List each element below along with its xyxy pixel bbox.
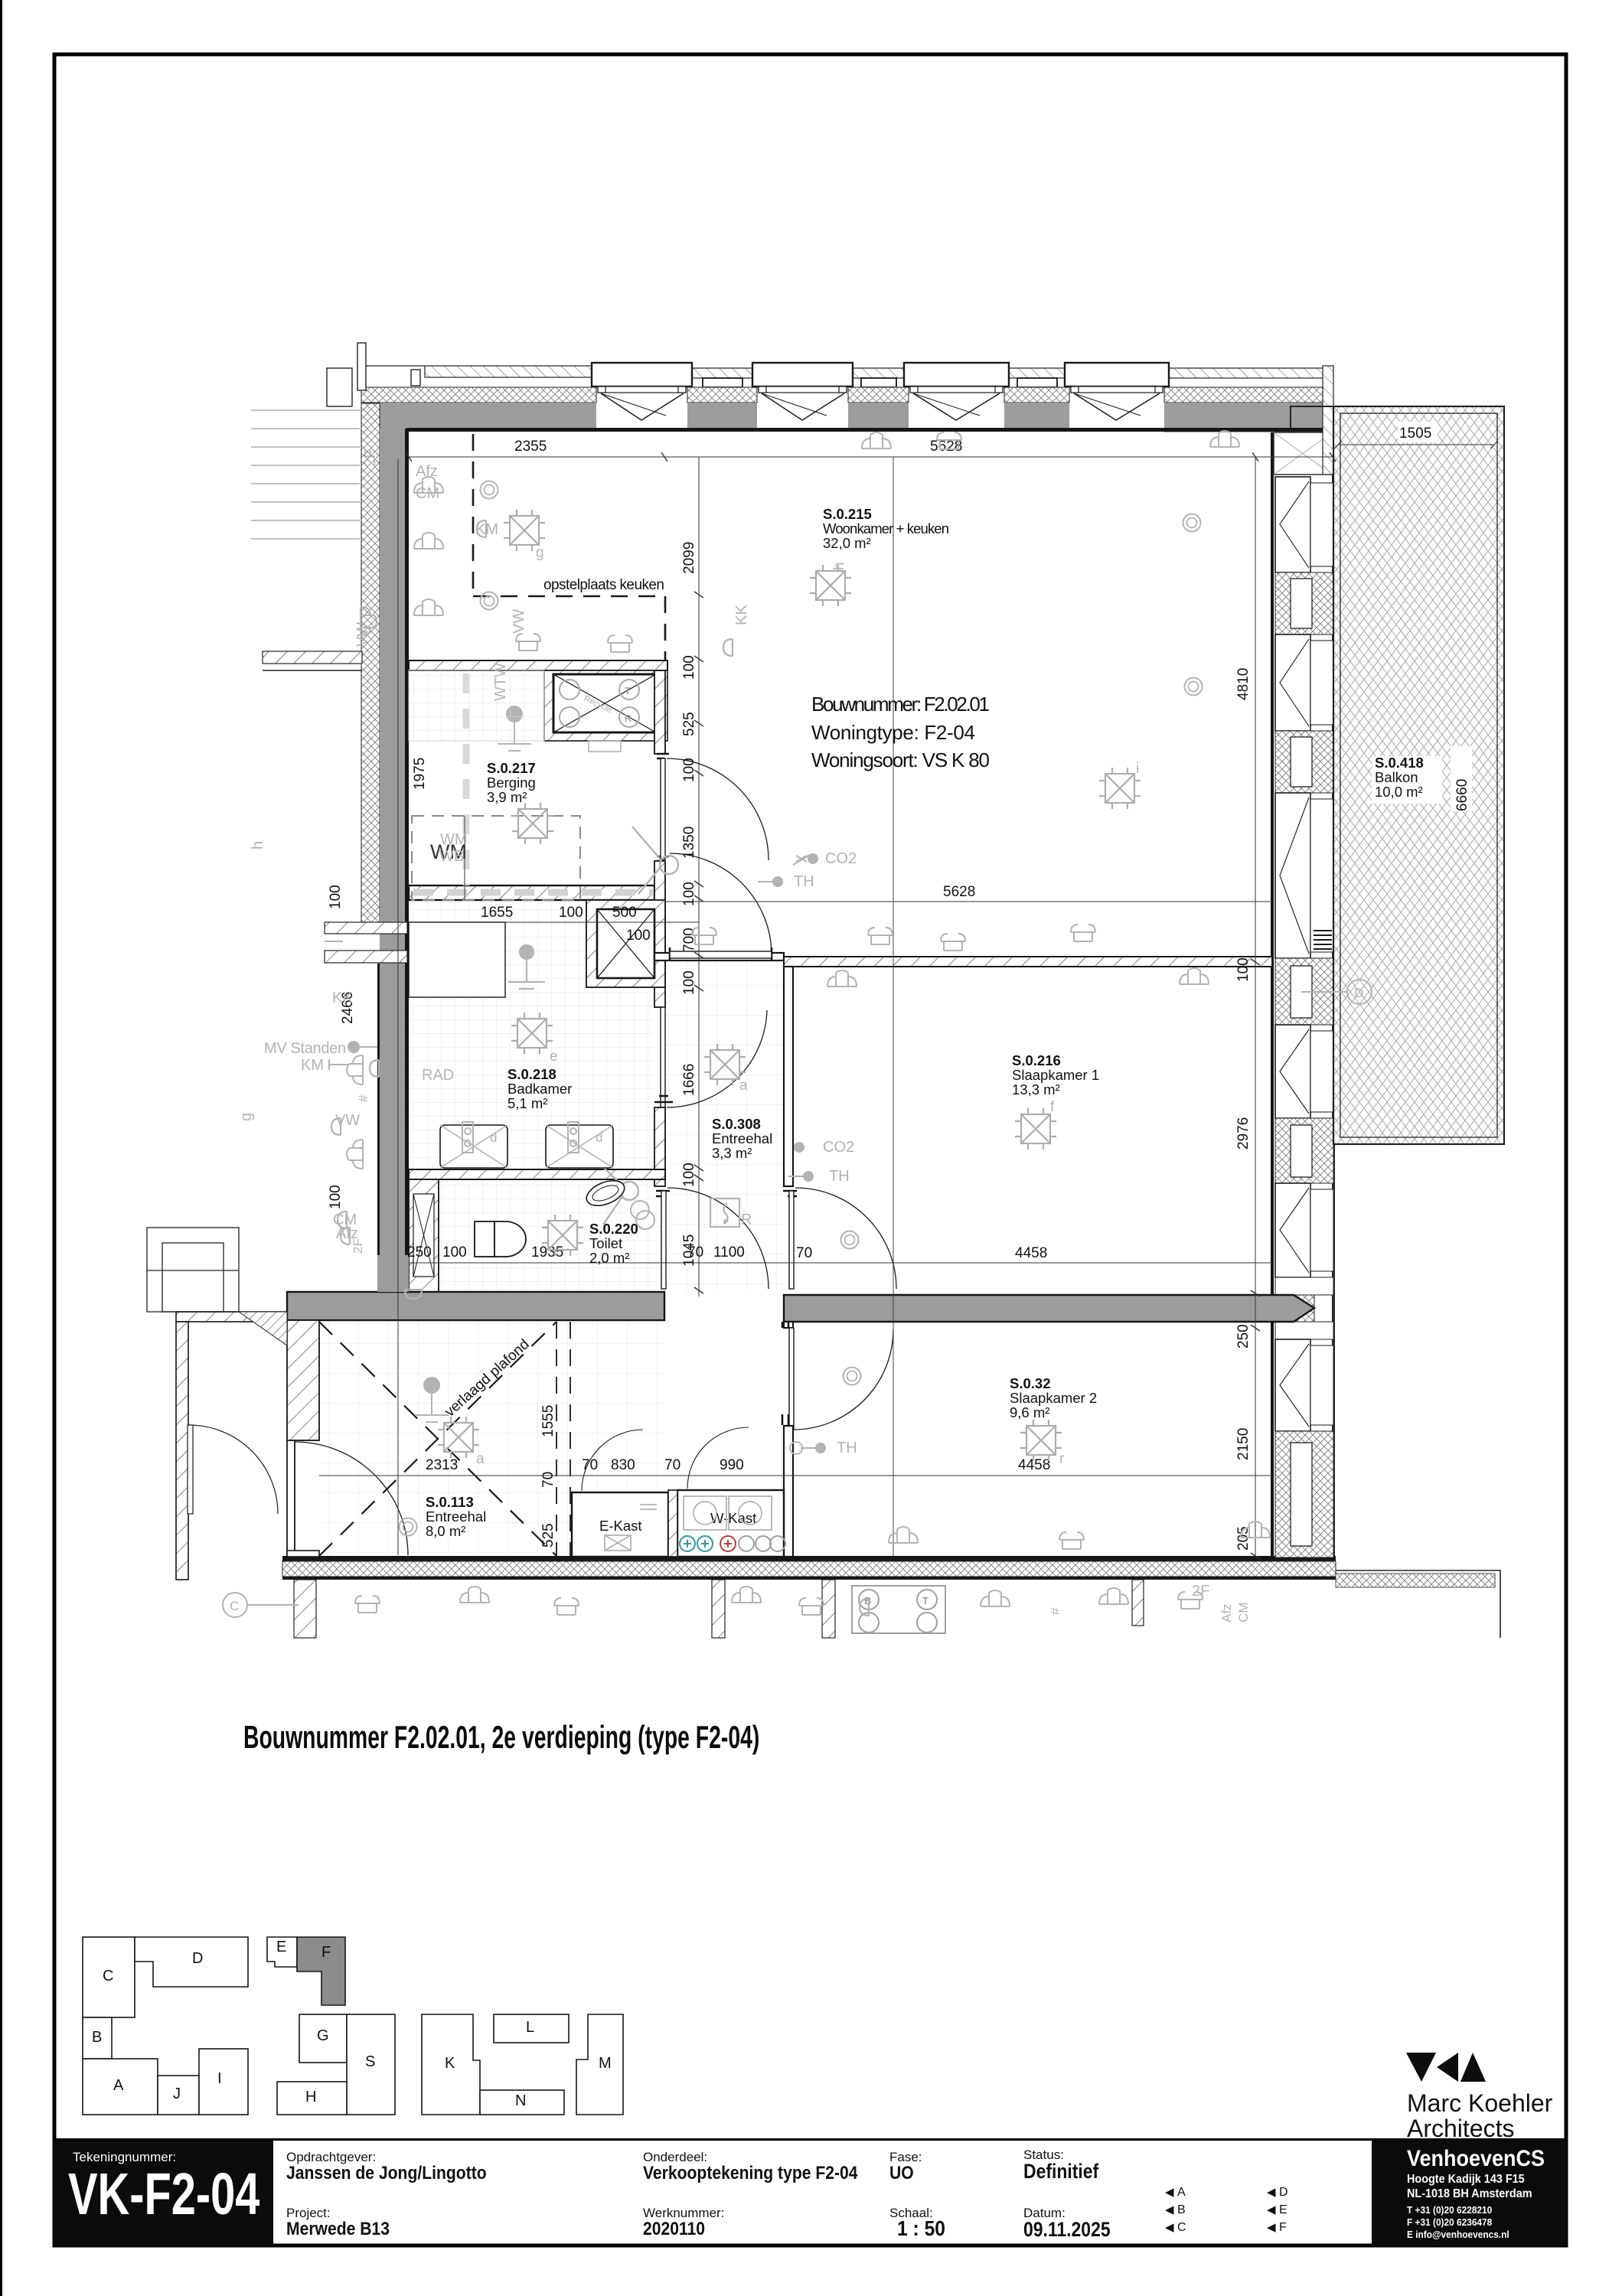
svg-text:100: 100	[681, 758, 697, 782]
svg-text:S.0.215: S.0.215	[823, 506, 872, 522]
svg-text:CO2: CO2	[823, 1139, 854, 1156]
svg-text:Woningsoort: VS K 80: Woningsoort: VS K 80	[811, 748, 990, 771]
svg-text:S.0.220: S.0.220	[589, 1221, 638, 1237]
svg-text:J: J	[173, 2086, 181, 2102]
svg-text:VW: VW	[354, 622, 371, 647]
svg-text:2F: 2F	[1192, 1583, 1209, 1600]
svg-text:S.0.418: S.0.418	[1375, 755, 1424, 771]
svg-text:B: B	[92, 2029, 102, 2046]
svg-text:1350: 1350	[681, 827, 697, 859]
svg-text:WB: WB	[439, 848, 464, 865]
svg-text:E-Kast: E-Kast	[599, 1518, 642, 1534]
svg-text:D: D	[1354, 986, 1363, 1000]
svg-text:Balkon: Balkon	[1375, 769, 1418, 785]
svg-text:10,0 m²: 10,0 m²	[1375, 784, 1423, 800]
svg-text:70: 70	[687, 1244, 703, 1261]
svg-text:525: 525	[540, 1523, 556, 1548]
svg-text:1666: 1666	[681, 1064, 697, 1096]
svg-text:N: N	[515, 2092, 526, 2109]
svg-text:70: 70	[540, 1472, 556, 1488]
svg-text:32,0 m²: 32,0 m²	[823, 535, 871, 551]
svg-text:h: h	[250, 841, 266, 850]
svg-text:D: D	[192, 1950, 203, 1967]
svg-text:70: 70	[796, 1245, 812, 1261]
svg-text:500: 500	[612, 905, 637, 921]
svg-text:6660: 6660	[1454, 779, 1470, 811]
svg-text:70: 70	[582, 1457, 598, 1473]
svg-text:8,0 m²: 8,0 m²	[426, 1523, 465, 1539]
svg-text:MV Standen: MV Standen	[264, 1040, 346, 1057]
svg-text:2976: 2976	[1235, 1117, 1252, 1150]
svg-text:1100: 1100	[713, 1244, 745, 1261]
svg-text:Berging: Berging	[487, 775, 536, 791]
svg-text:Marc Koehler: Marc Koehler	[1407, 2089, 1553, 2117]
svg-text:e: e	[550, 1049, 558, 1065]
svg-text:h: h	[831, 562, 847, 570]
svg-text:Badkamer: Badkamer	[507, 1081, 572, 1097]
svg-text:R: R	[625, 713, 632, 724]
svg-text:M: M	[599, 2055, 612, 2072]
svg-text:g: g	[536, 545, 544, 561]
svg-text:S.0.216: S.0.216	[1012, 1052, 1061, 1068]
svg-text:E: E	[276, 1939, 286, 1955]
svg-text:R: R	[741, 1212, 752, 1228]
svg-text:S.0.113: S.0.113	[426, 1494, 474, 1510]
svg-text:Woningtype: F2-04: Woningtype: F2-04	[811, 721, 975, 744]
svg-text:4458: 4458	[1018, 1457, 1050, 1473]
svg-text:2099: 2099	[681, 542, 697, 574]
svg-text:T: T	[922, 1595, 928, 1606]
svg-text:5628: 5628	[943, 884, 975, 900]
svg-text:100: 100	[626, 928, 651, 944]
svg-text:I: I	[217, 2070, 222, 2087]
svg-text:830: 830	[611, 1457, 635, 1473]
svg-text:H: H	[305, 2089, 316, 2105]
svg-text:Woonkamer + keuken: Woonkamer + keuken	[823, 520, 949, 536]
svg-text:100: 100	[681, 655, 697, 680]
svg-text:VW: VW	[335, 1112, 360, 1129]
svg-text:a: a	[739, 1078, 748, 1094]
svg-text:RAD: RAD	[422, 1067, 454, 1084]
svg-text:S.0.32: S.0.32	[1010, 1375, 1051, 1391]
svg-text:100: 100	[681, 970, 697, 995]
svg-text:100: 100	[559, 905, 583, 921]
svg-text:100: 100	[328, 885, 344, 909]
svg-text:Entreehal: Entreehal	[426, 1508, 486, 1525]
svg-text:S.0.217: S.0.217	[487, 760, 536, 776]
svg-text:opstelplaats keuken: opstelplaats keuken	[543, 577, 664, 593]
svg-text:2F: 2F	[351, 1238, 365, 1254]
svg-text:Bouwnummer: F2.02.01: Bouwnummer: F2.02.01	[811, 693, 990, 716]
svg-text:T: T	[625, 685, 631, 696]
svg-text:100: 100	[328, 1185, 344, 1209]
svg-text:250: 250	[407, 1244, 432, 1261]
svg-text:5628: 5628	[930, 439, 962, 455]
svg-text:r: r	[1059, 1451, 1065, 1467]
svg-text:i: i	[1136, 761, 1139, 777]
svg-text:g: g	[238, 1113, 255, 1121]
svg-text:250: 250	[1235, 1324, 1252, 1349]
svg-text:Toilet: Toilet	[589, 1235, 622, 1251]
svg-text:100: 100	[1235, 957, 1252, 982]
svg-text:2355: 2355	[514, 439, 547, 455]
svg-text:#: #	[1048, 1607, 1062, 1615]
svg-text:KK: KK	[733, 605, 750, 625]
svg-text:a: a	[476, 1451, 485, 1467]
svg-text:4810: 4810	[1235, 668, 1252, 700]
svg-text:KM: KM	[301, 1057, 324, 1074]
svg-text:2,0 m²: 2,0 m²	[589, 1250, 629, 1266]
svg-text:Afz: Afz	[1219, 1603, 1234, 1623]
svg-text:9,6 m²: 9,6 m²	[1010, 1404, 1049, 1420]
svg-text:KM: KM	[475, 521, 498, 538]
svg-text:C: C	[103, 1968, 113, 1985]
svg-text:B: B	[864, 1595, 871, 1606]
svg-text:990: 990	[720, 1457, 744, 1473]
svg-text:C: C	[230, 1599, 239, 1613]
svg-text:13,3 m²: 13,3 m²	[1012, 1081, 1060, 1097]
svg-text:4458: 4458	[1015, 1245, 1047, 1261]
svg-text:CO2: CO2	[825, 850, 857, 867]
svg-text:WM: WM	[440, 831, 468, 848]
svg-text:70: 70	[664, 1457, 680, 1473]
svg-text:Slaapkamer 1: Slaapkamer 1	[1012, 1067, 1099, 1083]
svg-text:L: L	[526, 2019, 534, 2036]
svg-text:1975: 1975	[412, 758, 428, 790]
svg-text:1505: 1505	[1399, 426, 1431, 442]
svg-text:Afz: Afz	[416, 463, 438, 480]
svg-text:Slaapkamer 2: Slaapkamer 2	[1010, 1390, 1097, 1406]
svg-text:S.0.308: S.0.308	[712, 1116, 761, 1132]
svg-text:TH: TH	[794, 873, 814, 890]
svg-text:K: K	[445, 2055, 455, 2072]
svg-text:TH: TH	[829, 1168, 850, 1185]
svg-text:VW: VW	[511, 609, 527, 634]
svg-text:#: #	[356, 1094, 370, 1102]
svg-text:2F: 2F	[362, 449, 379, 467]
svg-text:S: S	[365, 2053, 375, 2070]
svg-text:1655: 1655	[481, 905, 513, 921]
svg-text:F: F	[321, 1944, 331, 1961]
svg-text:1555: 1555	[540, 1405, 556, 1437]
svg-text:W-Kast: W-Kast	[710, 1510, 756, 1526]
svg-text:5,1 m²: 5,1 m²	[507, 1095, 547, 1111]
svg-text:3,3 m²: 3,3 m²	[712, 1145, 752, 1161]
svg-text:S.0.218: S.0.218	[507, 1066, 556, 1082]
svg-text:3,9 m²: 3,9 m²	[487, 789, 527, 805]
svg-text:Entreehal: Entreehal	[712, 1130, 772, 1146]
svg-text:CM: CM	[1236, 1603, 1251, 1623]
svg-text:100: 100	[681, 882, 697, 906]
svg-text:100: 100	[442, 1244, 467, 1261]
svg-text:f: f	[1050, 1099, 1055, 1115]
svg-text:KK: KK	[332, 990, 353, 1006]
svg-text:A: A	[113, 2077, 124, 2094]
svg-text:2150: 2150	[1235, 1428, 1252, 1460]
svg-text:525: 525	[681, 712, 697, 736]
svg-text:100: 100	[681, 1163, 697, 1187]
svg-text:2313: 2313	[426, 1457, 458, 1473]
svg-text:d: d	[596, 1130, 602, 1145]
svg-text:CM: CM	[416, 485, 439, 502]
svg-text:TH: TH	[837, 1440, 857, 1456]
svg-text:G: G	[317, 2027, 329, 2044]
svg-text:d: d	[490, 1130, 497, 1145]
